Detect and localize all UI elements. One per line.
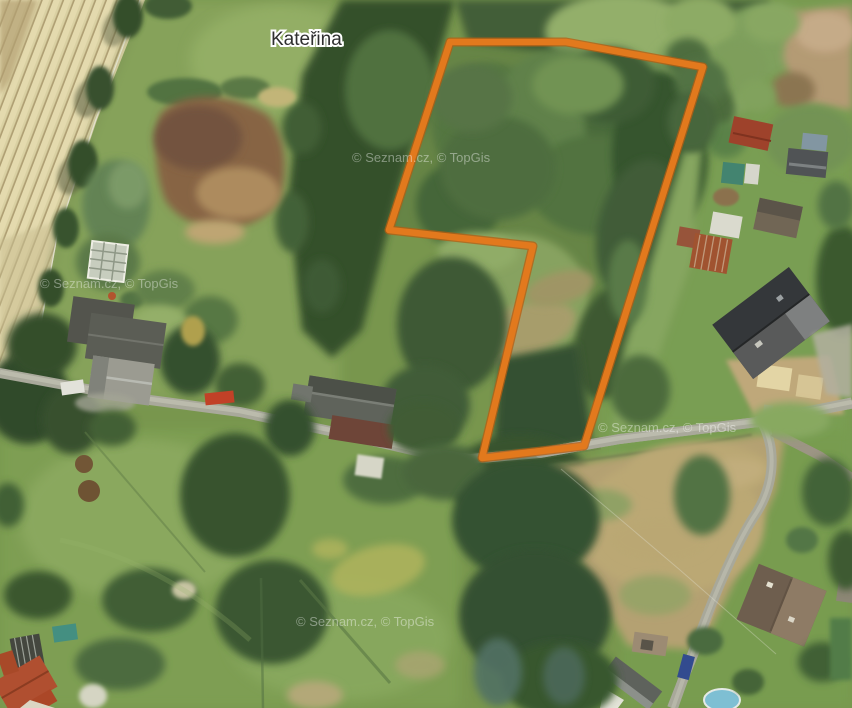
svg-text:© Seznam.cz, © TopGis: © Seznam.cz, © TopGis bbox=[598, 420, 737, 435]
svg-text:© Seznam.cz, © TopGis: © Seznam.cz, © TopGis bbox=[296, 614, 435, 629]
svg-text:Kateřina: Kateřina bbox=[271, 29, 342, 50]
svg-text:© Seznam.cz, © TopGis: © Seznam.cz, © TopGis bbox=[352, 150, 491, 165]
svg-text:© Seznam.cz, © TopGis: © Seznam.cz, © TopGis bbox=[40, 276, 179, 291]
